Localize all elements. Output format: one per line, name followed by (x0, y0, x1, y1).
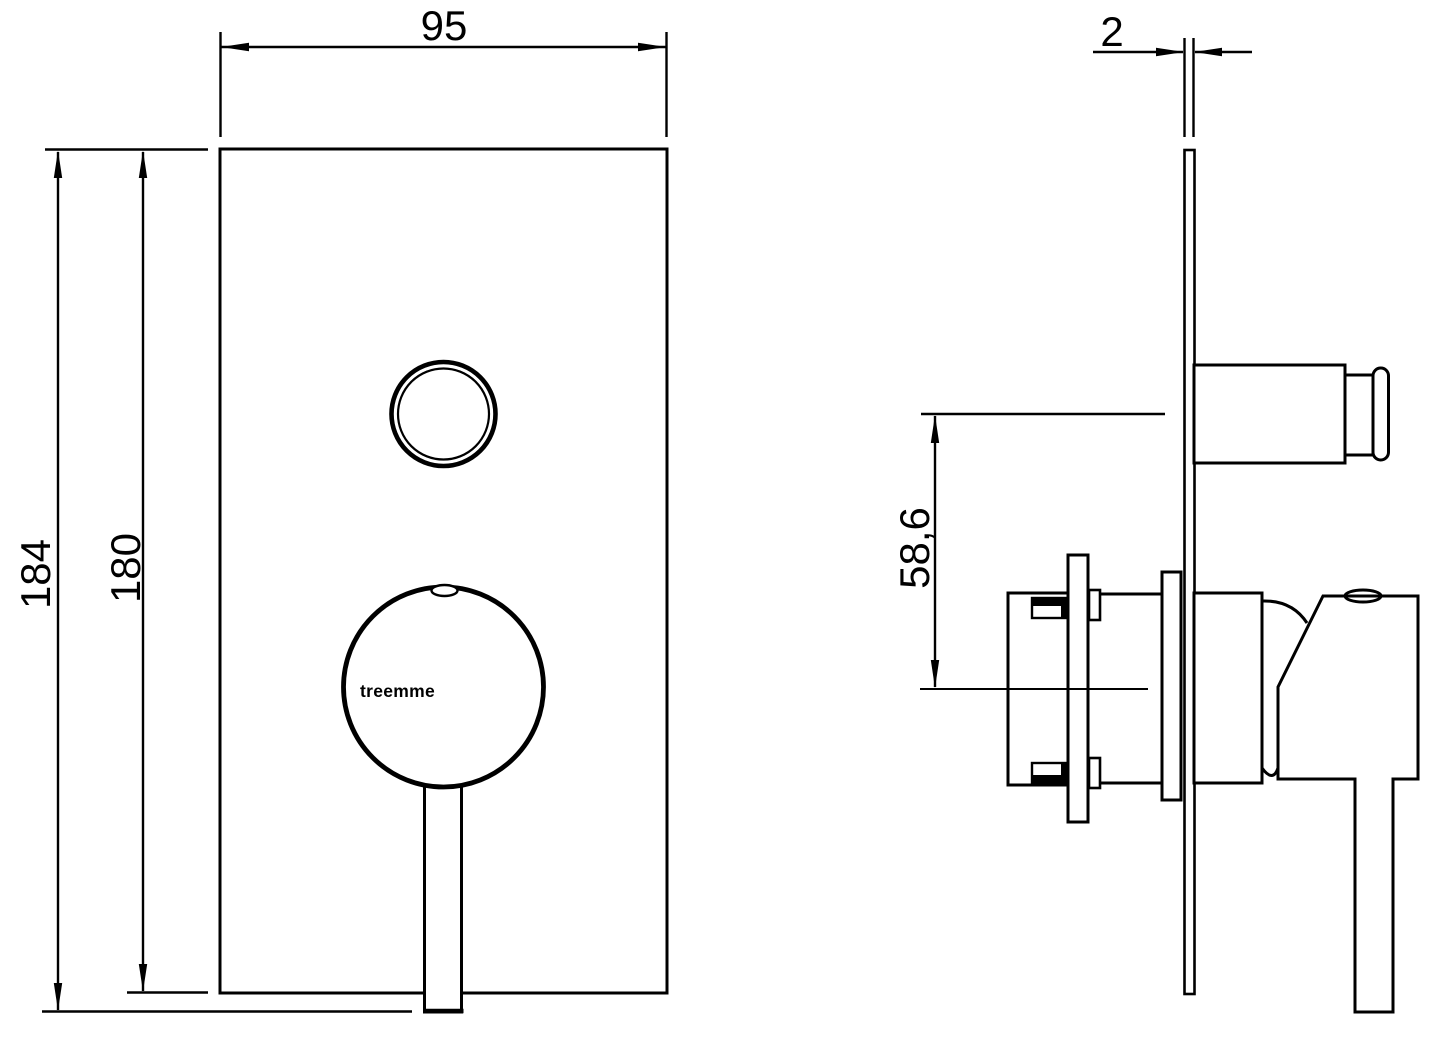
flange-tab-bottom (1089, 758, 1100, 788)
dim-label-height-overall: 184 (12, 539, 59, 609)
wall-plate (1185, 150, 1195, 994)
arrowhead-left-icon (221, 43, 249, 51)
mounting-clip-bottom (1032, 763, 1070, 783)
brand-logo: treemme (360, 681, 435, 701)
side-view (920, 150, 1418, 1012)
cartridge-housing (1194, 593, 1262, 783)
diverter-button-body-side (1194, 365, 1345, 463)
arrowhead-right-icon (638, 43, 666, 51)
lever-handle-side (1278, 596, 1418, 1012)
diverter-button-stem-side (1345, 375, 1373, 455)
dim-label-thickness: 2 (1100, 8, 1123, 55)
cartridge-lower-arc (1262, 768, 1278, 776)
dim-label-height-plate: 180 (102, 533, 149, 603)
dim-label-width: 95 (421, 2, 468, 49)
arrowhead-down-icon (54, 983, 62, 1011)
technical-drawing-page: treemme 95 184 180 (0, 0, 1445, 1041)
arrowhead-down-icon (931, 660, 939, 688)
seal-gasket (1162, 572, 1181, 800)
arrowhead-down-icon (139, 964, 147, 992)
dim-label-spacing: 58,6 (891, 507, 938, 589)
flange-tab-top (1089, 590, 1100, 620)
front-view: treemme (220, 149, 667, 1012)
arrowhead-left-icon (1194, 48, 1222, 56)
mixer-technical-drawing: treemme 95 184 180 (0, 0, 1445, 1041)
arrowhead-up-icon (139, 151, 147, 179)
rosette-top-notch (432, 585, 458, 596)
arrowhead-up-icon (54, 151, 62, 179)
cartridge-dome-arc (1262, 601, 1307, 623)
mounting-clip-top (1032, 598, 1070, 618)
arrowhead-right-icon (1156, 48, 1184, 56)
diverter-button-cap-side (1373, 368, 1389, 460)
arrowhead-up-icon (931, 415, 939, 443)
